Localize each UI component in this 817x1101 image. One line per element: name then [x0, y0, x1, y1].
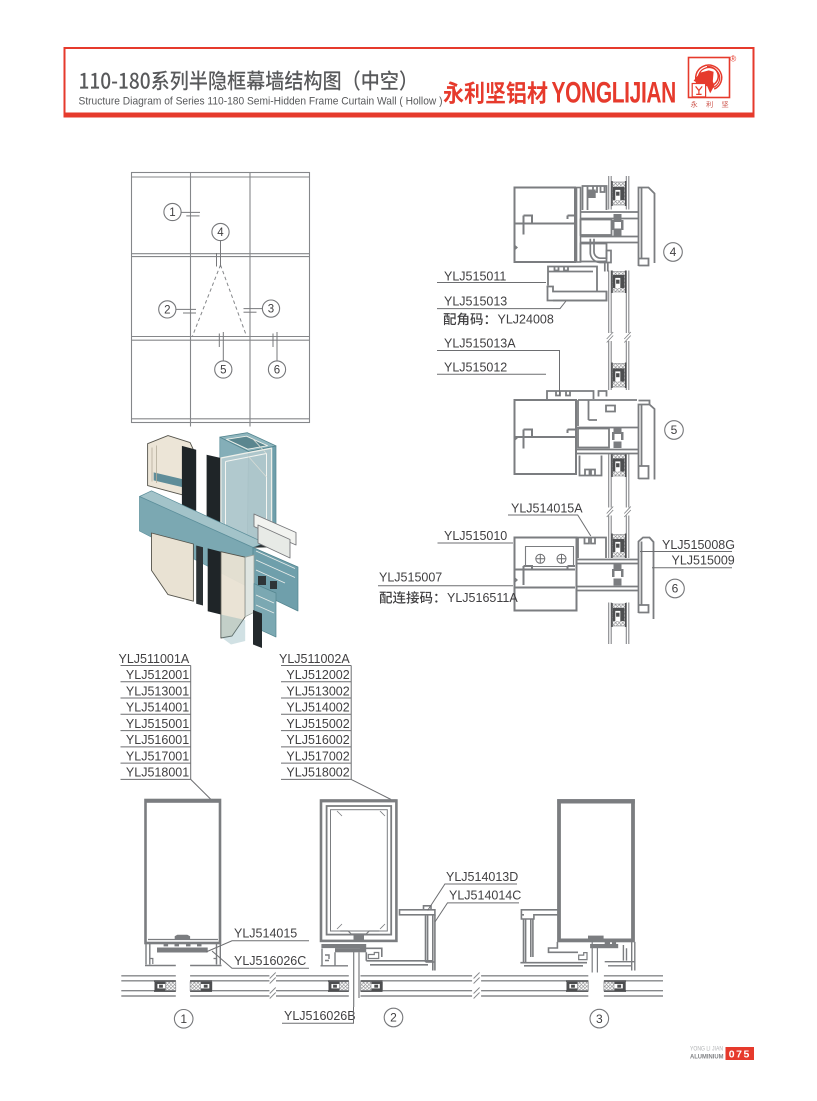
svg-text:YLJ514002: YLJ514002 — [286, 701, 349, 715]
svg-text:YLJ515009: YLJ515009 — [672, 554, 735, 568]
svg-text:2: 2 — [164, 304, 170, 316]
svg-text:YLJ512002: YLJ512002 — [286, 668, 349, 682]
svg-text:®: ® — [730, 54, 737, 64]
svg-text:YLJ513001: YLJ513001 — [126, 684, 189, 698]
svg-text:YLJ515013A: YLJ515013A — [444, 337, 516, 351]
svg-text:YLJ516511A: YLJ516511A — [447, 591, 518, 605]
svg-text:3: 3 — [596, 1012, 603, 1026]
svg-text:YLJ517001: YLJ517001 — [126, 749, 189, 763]
svg-text:YLJ518002: YLJ518002 — [286, 766, 349, 780]
svg-text:5: 5 — [671, 423, 678, 437]
svg-text:YLJ516026C: YLJ516026C — [234, 954, 306, 968]
svg-text:3: 3 — [268, 304, 274, 316]
svg-text:YLJ515012: YLJ515012 — [444, 360, 507, 374]
svg-text:YONGLIJIAN: YONGLIJIAN — [552, 77, 676, 109]
svg-text:YLJ515002: YLJ515002 — [286, 717, 349, 731]
svg-text:4: 4 — [670, 245, 677, 259]
svg-text:075: 075 — [729, 1048, 751, 1060]
svg-text:YLJ514014C: YLJ514014C — [449, 889, 521, 903]
svg-text:4: 4 — [217, 227, 224, 239]
svg-text:YLJ518001: YLJ518001 — [126, 766, 189, 780]
svg-text:YLJ514015: YLJ514015 — [234, 927, 297, 941]
svg-text:1: 1 — [169, 207, 175, 219]
svg-text:ALUMINIUM: ALUMINIUM — [690, 1054, 724, 1061]
svg-text:YLJ515011: YLJ515011 — [444, 270, 506, 284]
svg-text:YLJ515007: YLJ515007 — [379, 571, 442, 585]
svg-text:YLJ514013D: YLJ514013D — [446, 870, 518, 884]
svg-text:YONG LI JIAN: YONG LI JIAN — [690, 1046, 723, 1053]
svg-text:YLJ516002: YLJ516002 — [286, 733, 349, 747]
svg-text:YLJ514001: YLJ514001 — [126, 701, 189, 715]
svg-text:Structure Diagram of Series 11: Structure Diagram of Series 110-180 Semi… — [79, 96, 443, 108]
svg-text:YLJ515001: YLJ515001 — [126, 717, 189, 731]
svg-text:YLJ517002: YLJ517002 — [286, 749, 349, 763]
svg-text:1: 1 — [180, 1012, 187, 1026]
svg-text:2: 2 — [390, 1011, 397, 1025]
svg-text:YLJ513002: YLJ513002 — [286, 684, 349, 698]
svg-text:YLJ511002A: YLJ511002A — [279, 652, 350, 666]
svg-text:YLJ24008: YLJ24008 — [498, 313, 554, 327]
svg-text:YLJ515008G: YLJ515008G — [662, 538, 735, 552]
svg-text:YLJ515013: YLJ515013 — [444, 295, 507, 309]
svg-text:YLJ514015A: YLJ514015A — [511, 502, 583, 516]
svg-text:YLJ511001A: YLJ511001A — [119, 652, 190, 666]
svg-text:5: 5 — [220, 365, 226, 377]
svg-text:6: 6 — [672, 582, 679, 596]
svg-text:YLJ516026B: YLJ516026B — [284, 1009, 356, 1023]
svg-text:YLJ516001: YLJ516001 — [126, 733, 189, 747]
svg-text:YLJ512001: YLJ512001 — [126, 668, 189, 682]
svg-text:YLJ515010: YLJ515010 — [444, 529, 507, 543]
svg-text:6: 6 — [274, 365, 280, 377]
